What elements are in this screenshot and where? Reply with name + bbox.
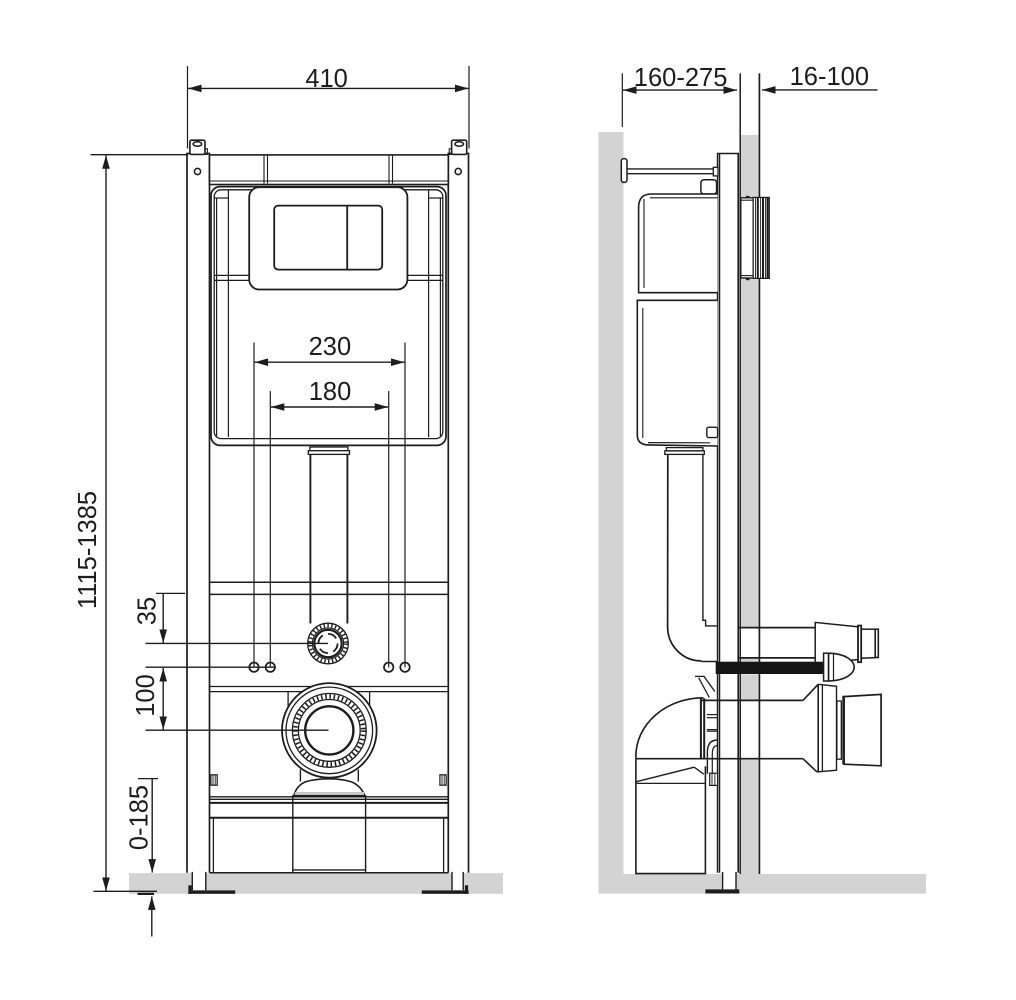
svg-text:0-185: 0-185: [125, 785, 153, 850]
svg-text:180: 180: [309, 378, 352, 406]
svg-text:160-275: 160-275: [634, 64, 728, 92]
svg-text:35: 35: [134, 597, 162, 625]
svg-text:1115-1385: 1115-1385: [74, 491, 102, 609]
svg-text:16-100: 16-100: [790, 63, 869, 91]
svg-text:100: 100: [132, 674, 160, 717]
svg-text:230: 230: [309, 333, 352, 361]
svg-text:410: 410: [305, 65, 348, 93]
